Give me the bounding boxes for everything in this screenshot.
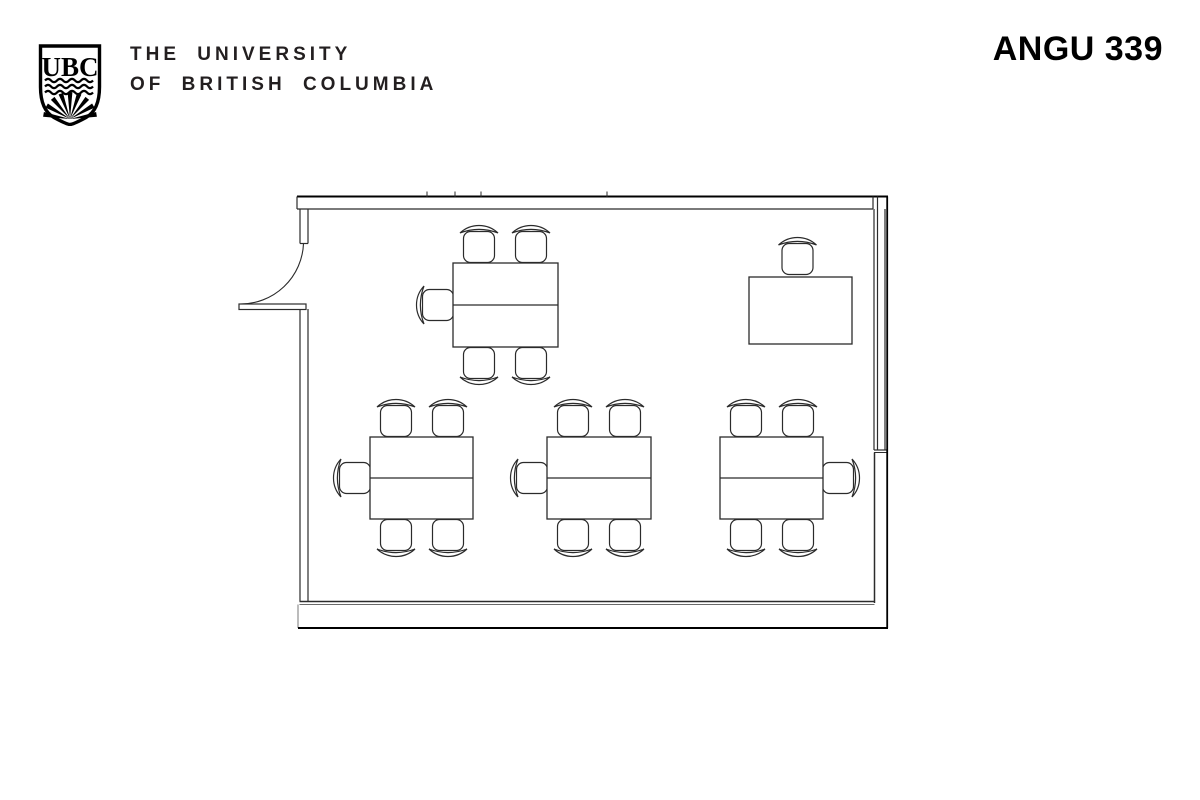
window-wall	[874, 209, 888, 453]
instructor-desk	[749, 237, 852, 344]
chair-seat	[558, 520, 589, 551]
chair-seat	[731, 406, 762, 437]
chair	[554, 399, 592, 436]
chair	[727, 520, 765, 557]
door-leaf	[239, 304, 306, 310]
chair	[779, 399, 817, 436]
chair-seat	[516, 348, 547, 379]
chair	[510, 459, 547, 497]
chair-seat	[423, 290, 454, 321]
chair-seat	[783, 406, 814, 437]
chair	[779, 237, 817, 274]
chair	[460, 348, 498, 385]
desk-top	[749, 277, 852, 344]
chair-seat	[782, 244, 813, 275]
chair	[512, 225, 550, 262]
chair-seat	[517, 463, 548, 494]
chair-seat	[558, 406, 589, 437]
group-table-4	[720, 399, 860, 556]
chair	[823, 459, 860, 497]
floor-plan	[0, 0, 1200, 800]
chair	[377, 399, 415, 436]
chair-seat	[340, 463, 371, 494]
page: { "header": { "logo_text": "UBC", "unive…	[0, 0, 1200, 800]
chair-seat	[464, 232, 495, 263]
chair-seat	[783, 520, 814, 551]
group-table-2	[333, 399, 473, 556]
chair	[333, 459, 370, 497]
chair	[512, 348, 550, 385]
chair	[606, 520, 644, 557]
chair	[554, 520, 592, 557]
chair-seat	[516, 232, 547, 263]
chair	[460, 225, 498, 262]
chair	[727, 399, 765, 436]
chair-seat	[381, 406, 412, 437]
chair	[779, 520, 817, 557]
group-table-3	[510, 399, 651, 556]
chair	[429, 399, 467, 436]
group-table-1	[416, 225, 558, 384]
chair-seat	[464, 348, 495, 379]
chair-seat	[731, 520, 762, 551]
chair-seat	[610, 406, 641, 437]
chair	[606, 399, 644, 436]
chair	[416, 286, 453, 324]
chair-seat	[433, 520, 464, 551]
chair	[377, 520, 415, 557]
door	[239, 244, 306, 310]
door-swing-arc	[240, 244, 304, 305]
furniture-layer	[333, 225, 859, 556]
chair-seat	[433, 406, 464, 437]
chair-seat	[381, 520, 412, 551]
chair-seat	[823, 463, 854, 494]
chair-seat	[610, 520, 641, 551]
chair	[429, 520, 467, 557]
